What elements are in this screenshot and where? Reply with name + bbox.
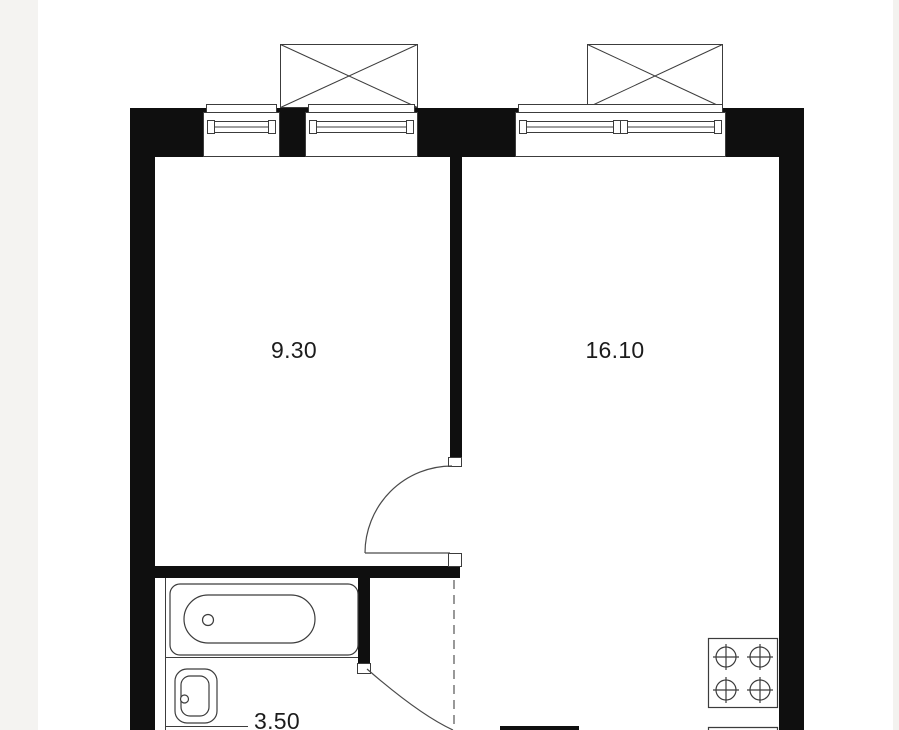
door-frames (358, 458, 462, 674)
wall-room-divider (450, 157, 462, 458)
bathtub (170, 584, 358, 655)
window-left (204, 105, 280, 157)
floor-plan-drawing (0, 0, 899, 730)
vent-shaft-left (281, 45, 418, 108)
room-area-label-left: 9.30 (244, 337, 344, 364)
door-swing-room (365, 466, 452, 553)
vent-shaft-right (588, 45, 723, 108)
wash-basin (175, 669, 217, 723)
wall-stub-bottom (500, 726, 579, 730)
door-frame-room-top (449, 458, 462, 467)
door-frame-bathroom (358, 664, 371, 674)
wall-left (130, 108, 155, 730)
wall-right (779, 108, 804, 730)
window-middle (306, 105, 418, 157)
bathtub-drain (203, 615, 214, 626)
door-swing-bathroom (367, 669, 453, 730)
wall-bathroom-right (358, 578, 370, 663)
window-right (516, 105, 726, 157)
room-area-label-right: 16.10 (565, 337, 665, 364)
basin-faucet (181, 695, 189, 703)
wall-bathroom-top (130, 566, 460, 578)
floor-plan-canvas: 9.30 16.10 3.50 (0, 0, 899, 730)
stove-4-burner (709, 639, 778, 708)
door-frame-room-bottom (449, 554, 462, 567)
room-area-label-bathroom: 3.50 (227, 708, 327, 730)
